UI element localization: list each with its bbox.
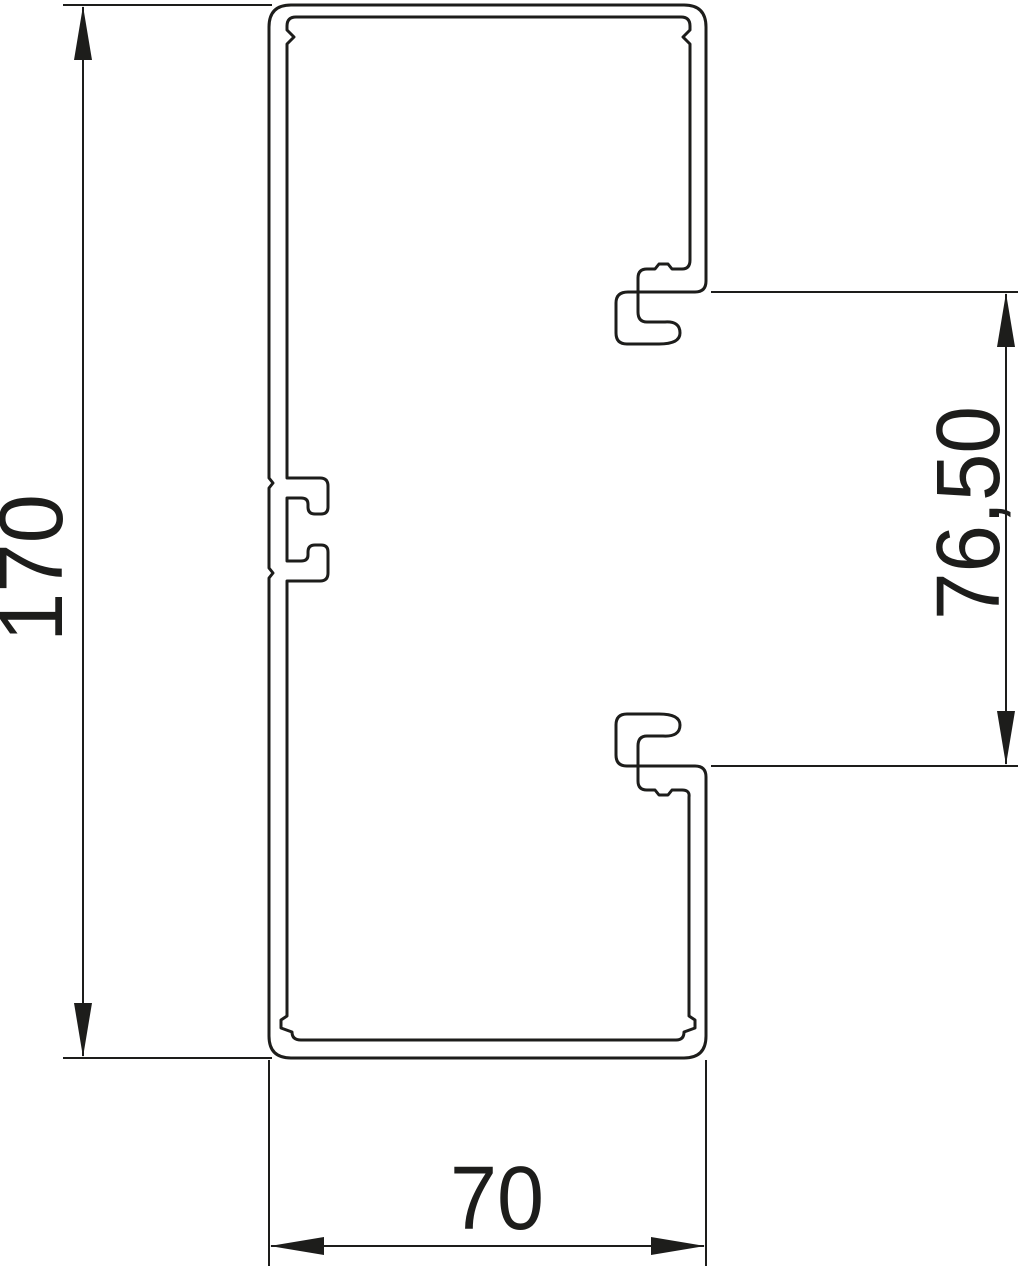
dimension-height: 170: [0, 5, 272, 1058]
opening-arrow-up-icon: [997, 293, 1015, 347]
dimension-cover-opening: 76,50: [711, 292, 1019, 766]
opening-dimension-value: 76,50: [919, 406, 1019, 620]
trunking-cross-section-drawing: 170 76,50 70: [0, 0, 1024, 1266]
duct-profile-outline: [269, 5, 706, 1058]
height-dimension-value: 170: [0, 494, 82, 642]
height-arrow-up-icon: [74, 6, 92, 60]
duct-profile: [269, 5, 706, 1058]
technical-drawing-canvas: 170 76,50 70: [0, 0, 1024, 1266]
width-arrow-right-icon: [651, 1237, 705, 1255]
height-arrow-down-icon: [74, 1003, 92, 1057]
width-arrow-left-icon: [270, 1237, 324, 1255]
opening-arrow-down-icon: [997, 711, 1015, 765]
width-dimension-value: 70: [450, 1149, 544, 1249]
dimension-width: 70: [269, 1060, 706, 1266]
